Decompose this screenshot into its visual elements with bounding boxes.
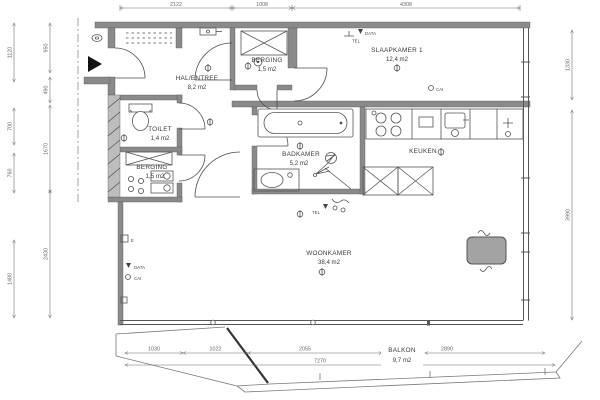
- room-area-berging-top: 1,5 m2: [258, 66, 277, 73]
- dim-label: 2890: [441, 347, 453, 353]
- front-door: [115, 48, 145, 78]
- dim-label: 2430: [44, 248, 50, 260]
- facade-joint-symbol: [211, 320, 216, 325]
- data-outlet-icon: [358, 29, 363, 34]
- toilet-top-wall: [120, 95, 182, 100]
- socket-icon: [121, 134, 127, 142]
- room-label-balkon: BALKON: [388, 347, 416, 354]
- badkamer-keuken-wall: [360, 107, 365, 194]
- tel-label: TEL: [352, 39, 361, 44]
- room-area-balkon: 9,7 m2: [393, 357, 412, 364]
- room-area-berging: 1,5 m2: [146, 173, 165, 180]
- facade-joint-symbol: [311, 320, 316, 325]
- dim-label: 4308: [400, 2, 412, 8]
- data-label: DATA: [365, 31, 376, 36]
- dim-label: 7270: [314, 359, 326, 365]
- room-area-toilet: 1,4 m2: [151, 135, 170, 142]
- hatched-wall: [108, 95, 120, 197]
- tel-outlet-icon: [344, 31, 354, 36]
- right-window-wall: [524, 28, 529, 321]
- socket-icon: [319, 268, 325, 276]
- room-label-badkamer: BADKAMER: [282, 151, 320, 158]
- e-label: E: [131, 238, 134, 243]
- room-area-woonkamer: 38,4 m2: [318, 259, 341, 266]
- berging-bottom-wall: [108, 197, 182, 202]
- socket-icon: [438, 148, 444, 156]
- floorplan-drawing: 2122 1008 4308 1030 1022 2055 2890 7270 …: [0, 0, 600, 400]
- badkamer-bottom-wall: [252, 189, 365, 194]
- window-facades: [120, 28, 530, 326]
- left-wall-upper-a: [108, 28, 115, 48]
- entrance-arrow-icon: [88, 56, 102, 72]
- dim-label: 2122: [170, 2, 182, 8]
- dim-label: 1670: [44, 143, 50, 155]
- room-label-slaapkamer: SLAAPKAMER 1: [371, 47, 423, 54]
- slaapkamer-door: [294, 68, 327, 101]
- socket-icon: [297, 210, 303, 218]
- balcony-door-leaf: [227, 328, 268, 383]
- bottom-window-wall: [120, 321, 523, 325]
- entry-stub-wall: [84, 77, 110, 84]
- cable-squiggle: [332, 199, 349, 203]
- socket-icon: [205, 64, 211, 72]
- room-label-toilet: TOILET: [148, 126, 172, 133]
- table-furniture: [467, 231, 506, 272]
- room-label-woonkamer: WOONKAMER: [306, 250, 352, 257]
- hatched-wall-body: [108, 95, 120, 197]
- berging-door: [179, 155, 205, 181]
- badkamer-left-wall-a: [252, 107, 257, 115]
- berging-bottom-wall-b: [277, 85, 292, 90]
- top-wall: [95, 22, 530, 28]
- badkamer-left-wall-b: [252, 146, 257, 194]
- facade-post: [427, 320, 430, 326]
- kitchen-crossed-boxes: [363, 167, 433, 195]
- dim-label: 1120: [8, 47, 14, 59]
- berging-slaapkamer-wall: [288, 28, 297, 68]
- berging-bottom-wall-a: [235, 85, 257, 90]
- doorbell-icon: [92, 35, 102, 42]
- room-label-hal: HAL/ENTREE: [176, 75, 219, 82]
- balcony-outline: [116, 327, 582, 392]
- hal-berging-wall: [230, 28, 235, 90]
- room-labels: HAL/ENTREE 8,2 m2 BERGING 1,5 m2 SLAAPKA…: [136, 47, 437, 364]
- dim-label: 2055: [299, 347, 311, 353]
- cai-outlet-icon: [429, 86, 434, 91]
- socket-icon: [297, 142, 303, 150]
- floorplan-page: 2122 1008 4308 1030 1022 2055 2890 7270 …: [0, 0, 600, 400]
- dim-label: 1330: [566, 59, 572, 71]
- room-label-keuken: KEUKEN: [409, 148, 437, 155]
- room-area-badkamer: 5,2 m2: [290, 160, 309, 167]
- socket-icon: [245, 62, 251, 70]
- room-area-slaapkamer: 12,4 m2: [386, 56, 409, 63]
- dim-label: 700: [8, 122, 14, 131]
- room-label-berging: BERGING: [136, 164, 167, 171]
- room-area-hal: 8,2 m2: [188, 84, 207, 91]
- toilet-right-wall-a: [177, 95, 182, 103]
- dim-label: 1030: [148, 347, 160, 353]
- dim-label: 490: [44, 86, 50, 95]
- room-label-berging-top: BERGING: [251, 57, 282, 64]
- data-outlet-icon: [126, 263, 131, 268]
- socket-icon: [207, 118, 213, 126]
- dim-label: 1022: [210, 347, 222, 353]
- media-symbols: [121, 29, 434, 303]
- washbasin: [254, 169, 299, 191]
- data-label: DATA: [134, 265, 145, 270]
- cai-label: CAI: [436, 87, 443, 92]
- dim-label: 1008: [256, 2, 268, 8]
- dim-label: 3990: [566, 209, 572, 221]
- cai-outlet-icon: [126, 275, 131, 280]
- dim-label: 950: [44, 44, 50, 53]
- woonkamer-door: [195, 152, 240, 197]
- tel-label: TEL: [312, 210, 321, 215]
- kitchen-counter: [366, 109, 523, 139]
- hal-closet-stub-wall: [176, 28, 182, 48]
- dim-label: 1480: [8, 273, 14, 285]
- cai-label: CAI: [134, 276, 141, 281]
- wardrobe-symbol: [126, 33, 172, 43]
- ceiling-fixture: [200, 28, 222, 35]
- toilet-door: [179, 103, 205, 129]
- tel-outlet-icon: [323, 204, 328, 209]
- left-wall-lower: [118, 202, 123, 325]
- toilet-berging-divider-wall: [120, 147, 182, 152]
- socket-icon: [394, 64, 400, 72]
- dim-label: 760: [8, 169, 14, 178]
- bathtub: [258, 109, 353, 137]
